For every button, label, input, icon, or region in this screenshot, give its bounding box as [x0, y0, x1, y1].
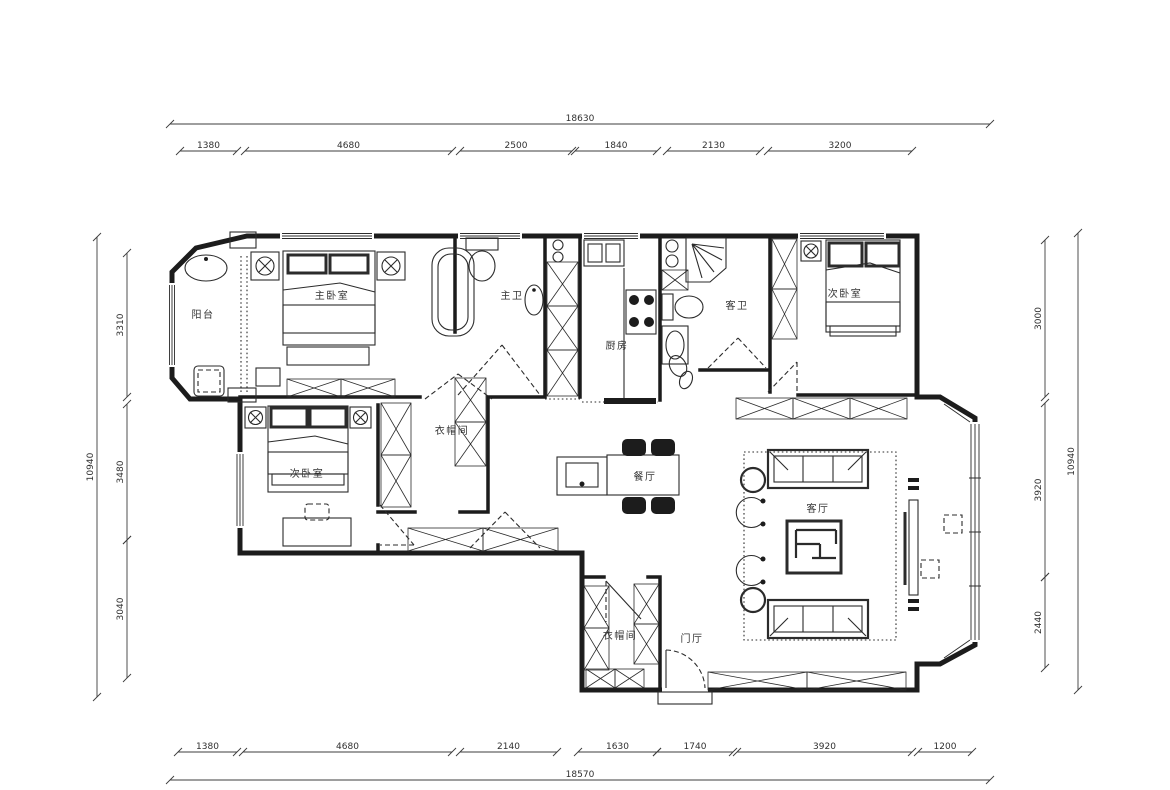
dimension-value: 4680: [336, 742, 359, 752]
dimension-value: 2140: [497, 742, 520, 752]
chair-symbol: [651, 439, 675, 456]
sofa-symbol: [768, 450, 868, 488]
chair-symbol: [622, 439, 646, 456]
side-table-symbol: [256, 368, 280, 386]
stove-symbol: [626, 290, 656, 334]
label-master-bath: 主卫: [501, 290, 524, 302]
washbasin-symbol: [525, 285, 543, 315]
label-closet1: 衣帽间: [435, 424, 470, 437]
toilet-symbol: [662, 294, 703, 320]
sliding-door: [241, 256, 247, 392]
room-balcony: [185, 255, 227, 396]
nightstand-lamp-symbol: [350, 407, 371, 428]
dimension-value: 1200: [934, 742, 957, 752]
chair-symbol: [622, 497, 646, 514]
label-bedroom3: 次卧室: [290, 467, 325, 480]
room-guest-bath: [662, 238, 726, 391]
cabinet-hatching: [287, 239, 907, 690]
bathtub-symbol: [432, 248, 474, 336]
chair-symbol: [651, 497, 675, 514]
nightstand-lamp-symbol: [377, 252, 405, 280]
dimension-value: 1380: [196, 742, 219, 752]
dimension-value: 1630: [606, 742, 629, 752]
label-master-bedroom: 主卧室: [315, 289, 350, 302]
sideboard-symbol: [557, 457, 607, 495]
dimension-value: 3920: [1034, 478, 1044, 501]
dimension-value: 3200: [829, 141, 852, 151]
dimension-value: 3480: [116, 460, 126, 483]
dimension-value: 4680: [337, 141, 360, 151]
tv-console-symbol: [905, 478, 962, 611]
dimension-value: 2130: [702, 141, 725, 151]
nightstand-lamp-symbol: [801, 241, 821, 261]
dimension-value: 3040: [116, 597, 126, 620]
floor-plan-page: 阳台 主卧室 主卫 厨房 客卫 次卧室 衣帽间 次卧室 餐厅 客厅 衣帽间 门厅…: [0, 0, 1170, 790]
label-closet2: 衣帽间: [603, 629, 638, 642]
room-master-bedroom: [251, 251, 405, 386]
dimension-value: 10940: [86, 452, 96, 481]
coffee-table-symbol: [787, 521, 841, 573]
nightstand-lamp-symbol: [251, 252, 279, 280]
label-guest-bath: 客卫: [726, 299, 749, 312]
walls: [172, 232, 975, 690]
dimension-value: 3000: [1034, 307, 1044, 330]
dimension-value: 18630: [566, 114, 595, 124]
dimension-value: 3920: [813, 742, 836, 752]
threshold: [604, 398, 656, 404]
room-living: [736, 450, 962, 640]
armchair-symbol: [736, 556, 765, 586]
toilet-symbol: [466, 238, 498, 281]
double-bed-symbol: [826, 240, 900, 336]
shower-symbol: [686, 238, 726, 282]
dimension-value: 1840: [605, 141, 628, 151]
coat-stand-symbol: [666, 353, 695, 391]
washbasin-symbol: [662, 326, 688, 364]
dimension-value: 1740: [684, 742, 707, 752]
double-bed-symbol: [283, 251, 375, 365]
dimension-value: 10940: [1067, 447, 1077, 476]
dimension-value: 18570: [566, 770, 595, 780]
dimension-value: 2440: [1034, 611, 1044, 634]
label-living: 客厅: [807, 502, 830, 515]
dimension-value: 2500: [505, 141, 528, 151]
cabinet-strip: [553, 240, 563, 262]
dimension-value: 3310: [116, 313, 126, 336]
nightstand-lamp-symbol: [245, 407, 266, 428]
room-dining: [557, 439, 679, 514]
label-foyer: 门厅: [681, 632, 704, 645]
label-kitchen: 厨房: [606, 339, 629, 352]
label-dining: 餐厅: [634, 470, 657, 483]
kitchen-sink-symbol: [584, 240, 624, 266]
washer-symbol: [194, 366, 224, 396]
desk-symbol: [283, 504, 351, 546]
label-bedroom2: 次卧室: [828, 287, 863, 300]
armchair-symbol: [736, 498, 765, 528]
sofa-symbol: [768, 600, 868, 638]
room-bedroom2: [801, 240, 900, 336]
label-balcony: 阳台: [192, 308, 215, 321]
floor-plan-canvas: 阳台 主卧室 主卫 厨房 客卫 次卧室 衣帽间 次卧室 餐厅 客厅 衣帽间 门厅…: [0, 0, 1170, 790]
room-master-bath: [432, 238, 543, 336]
side-table-symbol: [741, 468, 765, 492]
room-kitchen: [584, 240, 656, 404]
side-table-symbol: [741, 588, 765, 612]
dimension-value: 1380: [197, 141, 220, 151]
